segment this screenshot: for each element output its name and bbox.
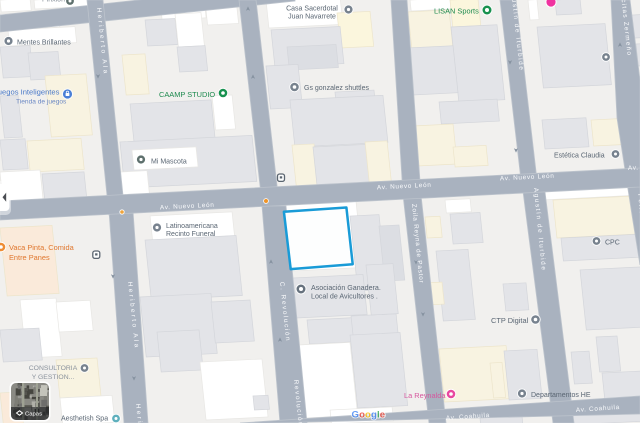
svg-text:Juegos Inteligentes: Juegos Inteligentes: [0, 88, 60, 97]
svg-text:Departamentos HE: Departamentos HE: [531, 392, 591, 399]
svg-text:Tienda de juegos: Tienda de juegos: [16, 99, 67, 106]
svg-text:Latinoamericana: Latinoamericana: [166, 223, 218, 230]
svg-text:Estética Claudia: Estética Claudia: [554, 153, 605, 160]
svg-text:Casa Sacerdotal: Casa Sacerdotal: [286, 6, 338, 13]
svg-text:La Reynalda: La Reynalda: [404, 391, 446, 400]
svg-text:Gs gonzalez shuttles: Gs gonzalez shuttles: [304, 85, 369, 92]
svg-text:Juan Navarrete: Juan Navarrete: [288, 14, 336, 21]
svg-text:Y GESTION...: Y GESTION...: [32, 374, 75, 381]
svg-text:Local de Avicultores .: Local de Avicultores .: [311, 293, 378, 301]
svg-text:Pinxión: Pinxión: [42, 0, 65, 3]
svg-text:LISAN Sports: LISAN Sports: [434, 7, 479, 16]
svg-text:CTP Digital: CTP Digital: [491, 316, 529, 325]
svg-text:Asociación Ganadera.: Asociación Ganadera.: [311, 284, 381, 292]
svg-text:Mentes Brillantes: Mentes Brillantes: [17, 40, 71, 47]
svg-text:Capas: Capas: [25, 411, 42, 417]
svg-text:CAAMP STUDIO: CAAMP STUDIO: [159, 90, 215, 99]
svg-text:Aesthetish Spa: Aesthetish Spa: [61, 416, 108, 423]
svg-text:Mi Mascota: Mi Mascota: [151, 159, 187, 166]
svg-text:Recinto Funeral: Recinto Funeral: [166, 231, 216, 238]
svg-text:Entre Panes: Entre Panes: [9, 253, 50, 262]
svg-text:Google: Google: [352, 410, 386, 421]
svg-text:CPC: CPC: [605, 240, 620, 247]
svg-text:Vaca Pinta, Comida: Vaca Pinta, Comida: [9, 243, 75, 252]
svg-text:CONSULTORIA: CONSULTORIA: [29, 365, 78, 372]
